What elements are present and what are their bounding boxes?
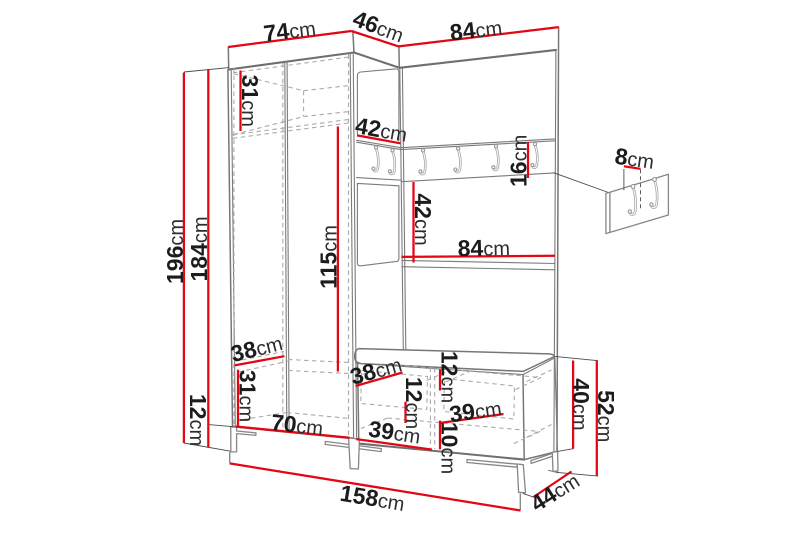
svg-text:84cm: 84cm	[457, 234, 510, 261]
svg-text:52cm: 52cm	[593, 390, 619, 442]
svg-text:184cm: 184cm	[186, 216, 212, 281]
svg-text:12cm: 12cm	[185, 394, 211, 446]
svg-text:31cm: 31cm	[237, 75, 263, 127]
svg-text:40cm: 40cm	[568, 378, 594, 430]
svg-text:31cm: 31cm	[234, 370, 260, 422]
svg-text:16cm: 16cm	[505, 135, 531, 187]
svg-text:196cm: 196cm	[162, 219, 188, 284]
svg-text:42cm: 42cm	[410, 193, 436, 245]
svg-text:12cm: 12cm	[436, 351, 462, 403]
svg-text:10cm: 10cm	[436, 422, 462, 474]
svg-text:12cm: 12cm	[401, 377, 427, 429]
svg-text:115cm: 115cm	[316, 225, 342, 289]
